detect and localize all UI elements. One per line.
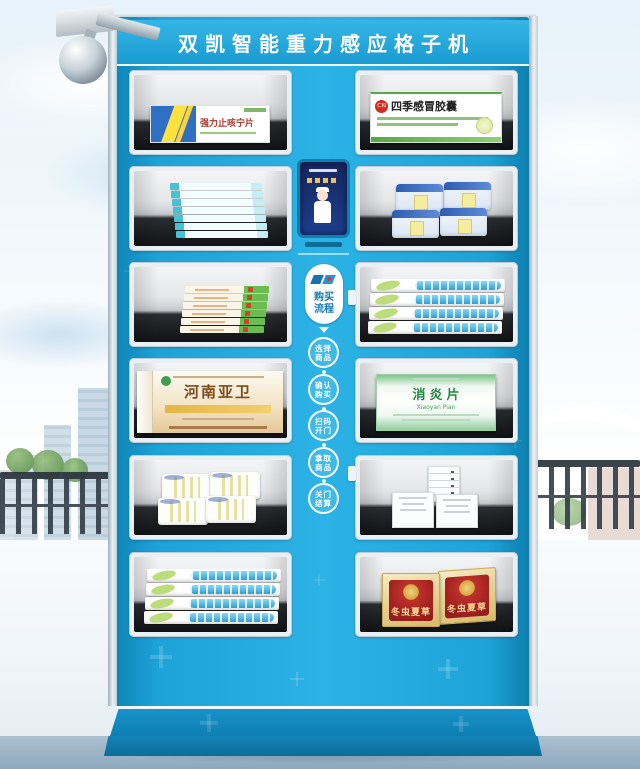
compartment-interior <box>360 460 513 535</box>
compartment-interior <box>360 267 513 342</box>
pouch-pack <box>440 208 487 236</box>
machine-base <box>110 709 536 736</box>
step-close-door-settle: 关门 结算 <box>308 483 339 514</box>
process-flow-capsule: 购买 流程 <box>305 264 343 324</box>
compartment-interior <box>360 171 513 246</box>
compartment-interior: 仁和 四季感冒胶囊 <box>360 75 513 150</box>
text-line-decoration <box>377 123 458 126</box>
box-art-gold-band <box>165 405 272 413</box>
railing-mid-rail <box>533 495 640 498</box>
railing-right <box>533 460 640 498</box>
step-select-product: 选择 商品 <box>308 337 339 368</box>
product-name-english: Xiaoyan Pian <box>377 404 495 411</box>
process-flow-label-line1: 购买 <box>305 292 343 304</box>
product-henan-yawei-box: 河南亚卫 <box>137 371 283 433</box>
text-line-decoration <box>443 499 471 501</box>
arrow-down-icon <box>319 327 329 333</box>
pouch-pack <box>444 182 491 210</box>
step-scan-open-door: 扫码 开门 <box>308 410 339 441</box>
compartment-row2-right <box>355 166 518 251</box>
product-slim-box-stack <box>170 183 268 239</box>
compartment-row6-right: 冬虫夏草 冬虫夏草 <box>355 552 518 637</box>
step-text: 拿取 <box>315 454 332 463</box>
compartment-row3-left <box>129 262 292 347</box>
tissue-pack <box>162 474 212 501</box>
box-art-green-band <box>371 137 501 142</box>
box-front-panel: 河南亚卫 <box>153 371 283 433</box>
machine-right-rail <box>529 16 538 706</box>
compartment-interior: 强力止咳宁片 <box>134 75 287 150</box>
slim-box <box>170 183 262 190</box>
text-line-decoration <box>182 418 254 420</box>
railing-top-rail <box>533 460 640 467</box>
step-text: 结算 <box>315 499 332 508</box>
long-box <box>144 611 278 624</box>
railing-mid-rail <box>0 504 112 507</box>
step-text: 商品 <box>315 463 332 472</box>
long-box <box>370 293 504 306</box>
plus-decoration <box>290 672 304 686</box>
product-name: 冬虫夏草 <box>447 600 487 616</box>
step-text: 开门 <box>315 426 332 435</box>
compartment-row4-left: 河南亚卫 <box>129 358 292 443</box>
text-line-decoration <box>200 132 256 134</box>
text-line-decoration <box>402 419 470 421</box>
nurse-illustration-head <box>317 190 328 201</box>
product-toothpaste-style-stack <box>144 569 281 625</box>
compartment-interior <box>134 460 287 535</box>
tree <box>6 448 34 474</box>
slim-box <box>171 191 263 198</box>
compartment-interior: 消炎片 Xiaoyan Pian <box>360 363 513 438</box>
cordyceps-box-back: 冬虫夏草 <box>438 567 496 625</box>
compartment-row1-right: 仁和 四季感冒胶囊 <box>355 70 518 155</box>
nurse-illustration-body <box>314 201 331 223</box>
product-white-boxes <box>386 466 498 528</box>
compartment-row1-left: 强力止咳宁片 <box>129 70 292 155</box>
slim-box <box>184 294 268 301</box>
product-slim-box-stack-green <box>180 286 269 334</box>
machine-base-foot <box>104 736 542 756</box>
product-name: 四季感冒胶囊 <box>391 98 457 114</box>
compartment-interior <box>134 171 287 246</box>
product-xiaoyan-pian-box: 消炎片 Xiaoyan Pian <box>376 374 496 431</box>
plus-decoration <box>508 434 522 448</box>
product-tissue-packs <box>154 472 268 528</box>
product-toothpaste-style-stack <box>368 279 505 335</box>
capsule-emblem <box>476 117 493 134</box>
machine-left-rail <box>108 16 117 706</box>
plus-decoration <box>453 716 469 732</box>
text-line-decoration <box>446 505 468 507</box>
plus-decoration <box>124 264 138 278</box>
pouch-pack <box>392 210 439 238</box>
product-name: 强力止咳宁片 <box>200 116 267 129</box>
red-label: 冬虫夏草 <box>445 574 489 618</box>
vending-machine: 双凯智能重力感应格子机 强力止咳宁片 仁和 <box>108 14 538 756</box>
step-text: 商品 <box>315 353 332 362</box>
box-art-text-panel: 强力止咳宁片 <box>196 106 269 142</box>
product-cordyceps-boxes: 冬虫夏草 冬虫夏草 <box>380 568 498 626</box>
compartment-interior: 冬虫夏草 冬虫夏草 <box>360 557 513 632</box>
compartment-interior <box>134 267 287 342</box>
door-handle <box>348 466 356 481</box>
text-line-decoration <box>393 414 479 416</box>
long-box <box>369 307 503 320</box>
process-flow-label-line2: 流程 <box>305 304 343 316</box>
text-line-decoration <box>169 426 267 429</box>
plus-decoration <box>438 659 458 679</box>
long-box <box>145 597 279 610</box>
screen-badge-row <box>307 178 339 183</box>
box-side-panel <box>137 371 153 433</box>
slim-box <box>185 286 269 293</box>
panel-groove <box>298 253 349 255</box>
step-confirm-purchase: 确认 购买 <box>308 374 339 405</box>
text-line-decoration <box>377 117 488 120</box>
compartment-interior <box>134 557 287 632</box>
step-text: 购买 <box>315 390 332 399</box>
slim-box <box>173 207 265 214</box>
brand-logo <box>311 273 337 287</box>
text-line-decoration <box>399 497 427 499</box>
slim-box <box>181 318 265 325</box>
red-label: 冬虫夏草 <box>389 580 433 621</box>
compartment-interior: 河南亚卫 <box>134 363 287 438</box>
pouch-pack <box>396 184 443 212</box>
long-box <box>368 321 502 334</box>
long-box <box>371 279 505 292</box>
tissue-pack <box>158 498 208 525</box>
step-text: 选择 <box>315 344 332 353</box>
security-camera <box>59 36 107 84</box>
cordyceps-box-front: 冬虫夏草 <box>382 573 440 627</box>
text-line-decoration <box>244 108 266 112</box>
slim-box <box>172 199 264 206</box>
box-art-title-row: 仁和 四季感冒胶囊 <box>375 98 501 114</box>
compartment-row5-left <box>129 455 292 540</box>
plus-decoration <box>200 714 218 732</box>
product-cough-tablets-box: 强力止咳宁片 <box>150 105 270 143</box>
white-box <box>436 494 478 528</box>
advertising-screen <box>300 162 347 235</box>
box-art-blue-panel <box>151 106 196 142</box>
railing-top-rail <box>0 472 112 479</box>
tissue-pack <box>206 496 256 523</box>
product-pouch-packs <box>376 180 496 240</box>
long-box <box>146 583 280 596</box>
step-text: 扫码 <box>315 417 332 426</box>
step-text: 确认 <box>315 381 332 390</box>
title-banner: 双凯智能重力感应格子机 <box>117 20 529 66</box>
step-text: 关门 <box>315 490 332 499</box>
slim-box <box>180 326 264 333</box>
railing-left <box>0 472 112 507</box>
renhe-brand-logo: 仁和 <box>375 100 388 113</box>
long-box <box>147 569 281 582</box>
slim-box <box>182 310 266 317</box>
compartment-row3-right <box>355 262 518 347</box>
tissue-pack <box>210 472 260 499</box>
compartment-row5-right <box>355 455 518 540</box>
product-name: 河南亚卫 <box>153 381 283 402</box>
slim-box <box>175 223 267 230</box>
product-cold-capsules-box: 仁和 四季感冒胶囊 <box>370 92 502 143</box>
text-line-decoration <box>444 511 470 513</box>
machine-title: 双凯智能重力感应格子机 <box>171 28 475 57</box>
process-flow-label: 购买 流程 <box>305 292 343 316</box>
screen-text-decoration <box>309 169 337 172</box>
text-line-decoration <box>173 376 264 378</box>
compartment-row6-left <box>129 552 292 637</box>
railing-balusters <box>533 467 640 529</box>
plus-decoration <box>313 574 325 586</box>
text-line-decoration <box>400 509 426 511</box>
brand-logo-dot <box>327 277 331 281</box>
base-trim-line <box>116 706 530 709</box>
compartment-row4-right: 消炎片 Xiaoyan Pian <box>355 358 518 443</box>
green-leaf-logo <box>161 376 171 386</box>
text-line-decoration <box>413 378 459 380</box>
slim-box <box>174 215 266 222</box>
product-name: 冬虫夏草 <box>391 605 431 618</box>
white-box <box>392 492 434 528</box>
compartment-row2-left <box>129 166 292 251</box>
card-slot <box>305 242 342 247</box>
text-line-decoration <box>402 503 424 505</box>
slim-box <box>183 302 267 309</box>
step-take-product: 拿取 商品 <box>308 447 339 478</box>
slim-box <box>176 231 268 238</box>
scene: 双凯智能重力感应格子机 强力止咳宁片 仁和 <box>0 0 640 769</box>
door-handle <box>348 290 356 305</box>
product-name: 消炎片 <box>377 384 495 403</box>
plus-decoration <box>150 646 172 668</box>
